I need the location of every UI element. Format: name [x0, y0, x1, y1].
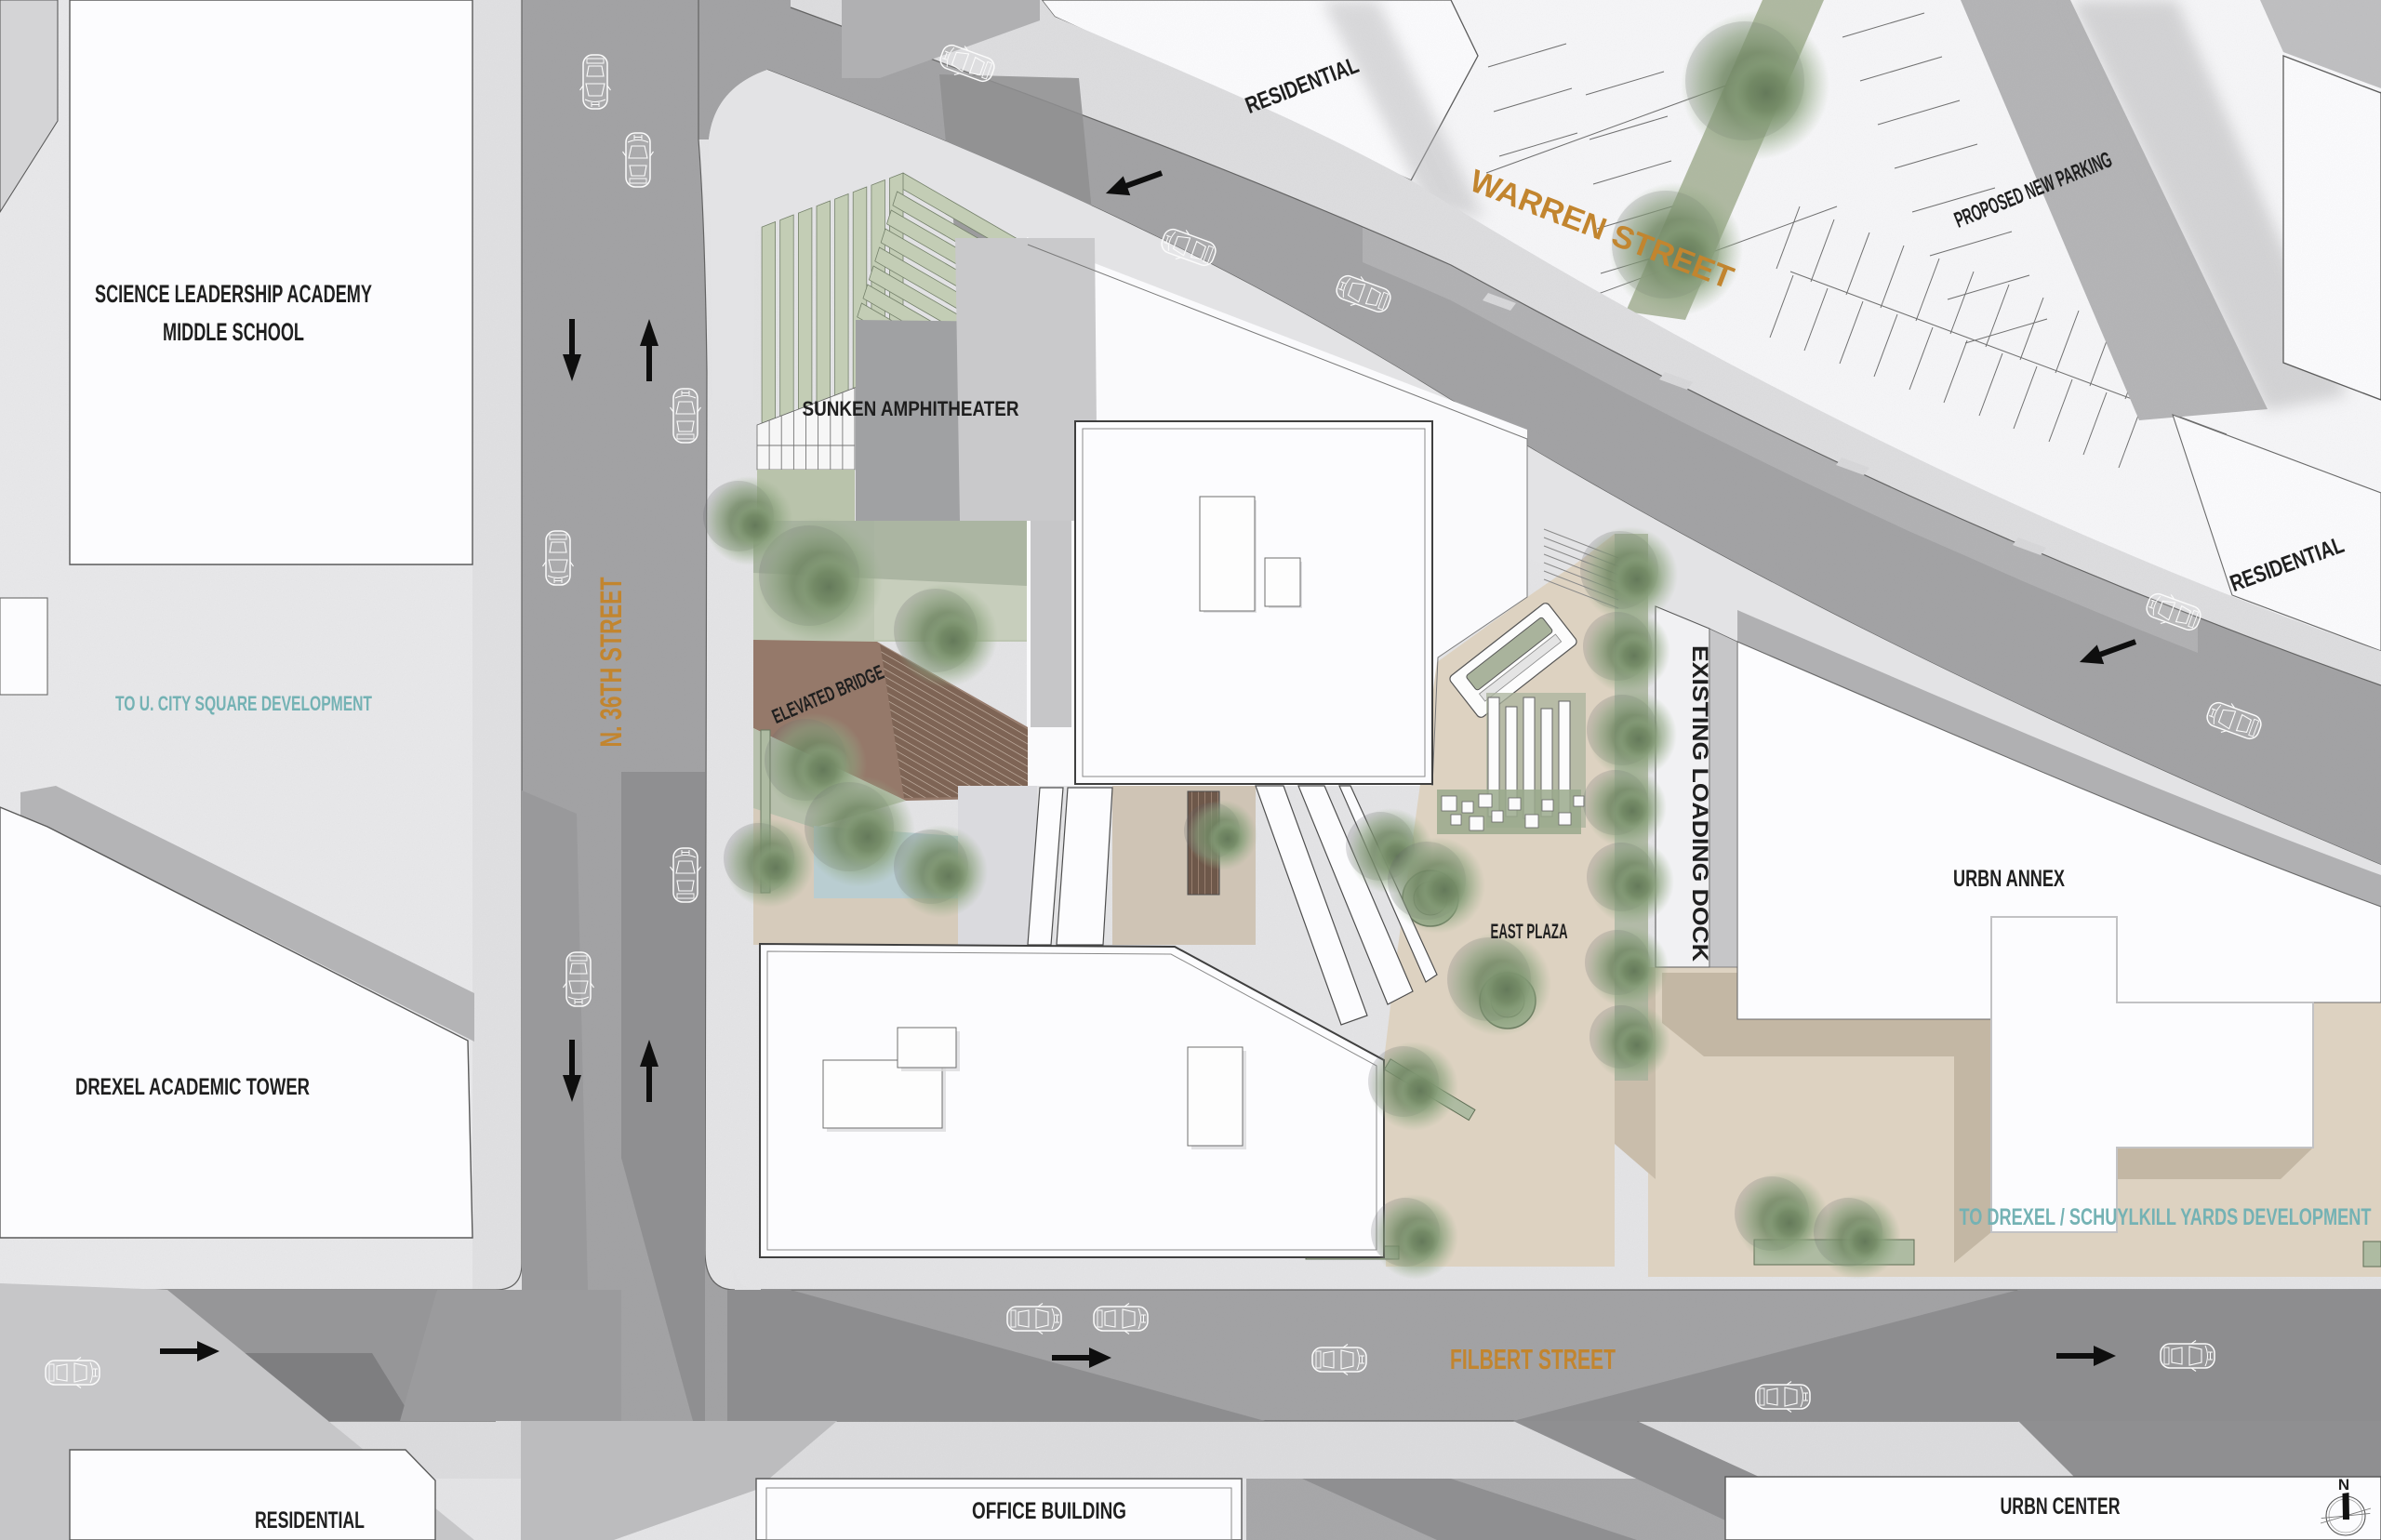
svg-text:TO U. CITY SQUARE DEVELOPMENT: TO U. CITY SQUARE DEVELOPMENT — [115, 692, 372, 715]
svg-text:RESIDENTIAL: RESIDENTIAL — [255, 1507, 365, 1533]
svg-text:EAST PLAZA: EAST PLAZA — [1491, 920, 1568, 943]
svg-text:URBN ANNEX: URBN ANNEX — [1953, 866, 2065, 892]
svg-text:SCIENCE LEADERSHIP ACADEMY: SCIENCE LEADERSHIP ACADEMY — [95, 280, 372, 308]
svg-text:N: N — [2338, 1476, 2349, 1494]
svg-text:OFFICE BUILDING: OFFICE BUILDING — [972, 1498, 1126, 1524]
svg-text:TO DREXEL / SCHUYLKILL YARDS D: TO DREXEL / SCHUYLKILL YARDS DEVELOPMENT — [1960, 1204, 2372, 1230]
svg-text:N. 36TH STREET: N. 36TH STREET — [594, 577, 628, 747]
svg-text:URBN CENTER: URBN CENTER — [2001, 1494, 2121, 1520]
svg-text:MIDDLE SCHOOL: MIDDLE SCHOOL — [163, 318, 304, 346]
svg-text:DREXEL ACADEMIC TOWER: DREXEL ACADEMIC TOWER — [75, 1074, 310, 1100]
svg-text:FILBERT STREET: FILBERT STREET — [1450, 1343, 1616, 1375]
svg-text:SUNKEN AMPHITHEATER: SUNKEN AMPHITHEATER — [803, 397, 1019, 420]
svg-text:EXISTING LOADING DOCK: EXISTING LOADING DOCK — [1687, 645, 1712, 962]
